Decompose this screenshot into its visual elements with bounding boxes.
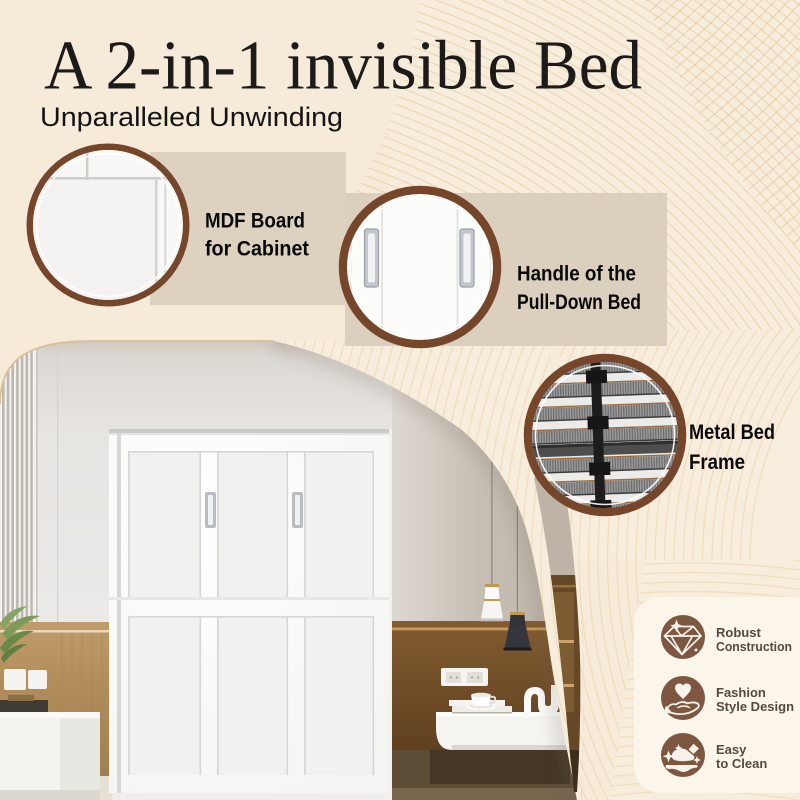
svg-text:Unparalleled Unwinding: Unparalleled Unwinding bbox=[40, 102, 343, 132]
svg-text:Easy: Easy bbox=[716, 742, 747, 757]
svg-text:Fashion: Fashion bbox=[716, 685, 766, 700]
svg-text:Robust: Robust bbox=[716, 625, 761, 640]
svg-text:Frame: Frame bbox=[689, 450, 745, 474]
svg-text:Pull-Down Bed: Pull-Down Bed bbox=[517, 290, 641, 314]
svg-text:Metal Bed: Metal Bed bbox=[689, 420, 775, 444]
svg-text:for Cabinet: for Cabinet bbox=[205, 237, 309, 261]
svg-text:Construction: Construction bbox=[716, 639, 792, 654]
svg-text:Style Design: Style Design bbox=[716, 699, 794, 714]
svg-text:to Clean: to Clean bbox=[716, 756, 767, 771]
svg-text:Handle of the: Handle of the bbox=[517, 262, 636, 286]
svg-text:MDF Board: MDF Board bbox=[205, 209, 305, 233]
svg-text:A 2-in-1 invisible Bed: A 2-in-1 invisible Bed bbox=[44, 28, 642, 105]
